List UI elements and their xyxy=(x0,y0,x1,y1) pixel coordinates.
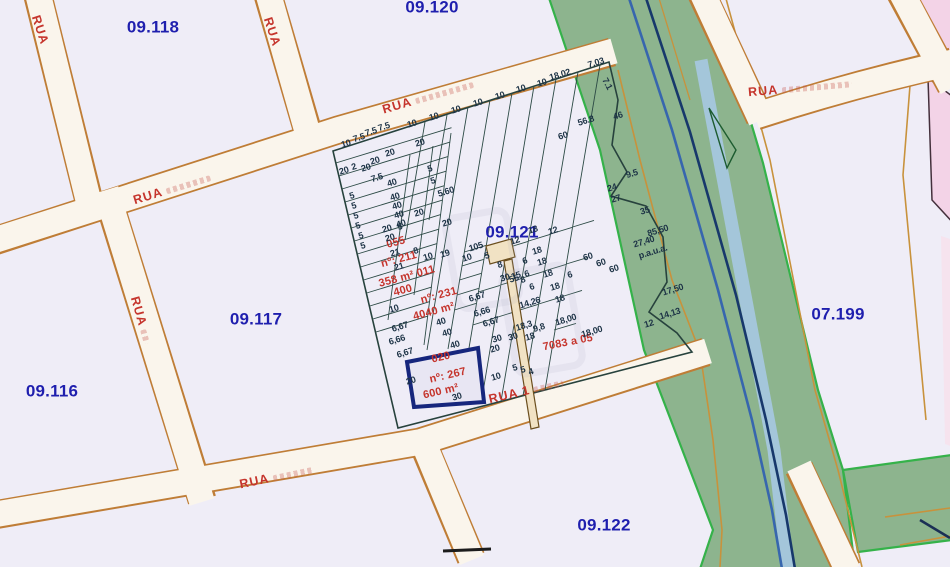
parcel-annotation: 4040 m² xyxy=(412,301,456,323)
street-label: RUA xyxy=(748,77,853,99)
dimension-label: 55 xyxy=(508,273,520,284)
dimension-label: 6 xyxy=(566,270,573,280)
dimension-label: 18,00 xyxy=(580,325,603,340)
dimension-label: 6 xyxy=(528,282,535,292)
dimension-label: 20 xyxy=(489,343,501,354)
street-name-scribble xyxy=(166,175,212,194)
dimension-label: 18 xyxy=(554,293,566,304)
dimension-label: 18 xyxy=(542,268,554,279)
dimension-label: 20 xyxy=(405,375,417,386)
dimension-label: 14,26 xyxy=(518,296,541,311)
dimension-label: 6,67 xyxy=(391,320,410,333)
block-label-09.116: 09.116 xyxy=(26,383,78,400)
dimension-label: 10 xyxy=(494,90,506,101)
block-label-09.120: 09.120 xyxy=(405,0,458,16)
dimension-label: 18 xyxy=(531,245,543,256)
street-label: RUA xyxy=(128,295,153,345)
dimension-label: 8 xyxy=(496,260,503,270)
dimension-label: 18,3 xyxy=(515,319,534,332)
dimension-label: 40 xyxy=(389,191,401,202)
dimension-label: 105 xyxy=(468,241,484,254)
cadastral-map[interactable]: 09.11809.12009.11709.11609.12109.12207.1… xyxy=(0,0,950,567)
dimension-label: 18.02 xyxy=(548,68,571,83)
dimension-label: 10 xyxy=(515,83,527,94)
dimension-label: 10 xyxy=(450,104,462,115)
dimension-label: 5 xyxy=(426,164,433,174)
dimension-label: 20 xyxy=(413,207,425,218)
dimension-label: 6 xyxy=(523,269,530,279)
dimension-label: 5 xyxy=(352,211,359,221)
dimension-label: 8 xyxy=(412,246,419,256)
dimension-label: 10 xyxy=(340,138,352,149)
dimension-label: 6,67 xyxy=(396,346,415,359)
dimension-label: 18 xyxy=(536,256,548,267)
dimension-label: 20 xyxy=(384,232,396,243)
dimension-label: 10 xyxy=(388,303,400,314)
dimension-label: 5 xyxy=(348,191,355,201)
dimension-label: 10 xyxy=(472,97,484,108)
street-name-scribble xyxy=(273,467,313,481)
dimension-label: 20 xyxy=(384,147,396,158)
dimension-label: 6 xyxy=(521,256,528,266)
parcel-annotation: 055 xyxy=(385,235,406,251)
parcel-annotation: nº: 267 xyxy=(429,366,468,385)
dimension-label: 18 xyxy=(527,224,539,235)
dimension-label: 20 xyxy=(381,223,393,234)
dimension-label: 12 xyxy=(643,318,655,329)
block-label-09.121: 09.121 xyxy=(485,224,538,241)
dimension-label: 60 xyxy=(557,130,569,141)
dimension-label: 6,66 xyxy=(388,333,407,346)
street-name-scribble xyxy=(140,329,150,344)
dimension-label: 30 xyxy=(451,391,463,402)
dimension-label: 10 xyxy=(428,111,440,122)
street-label: RUA xyxy=(261,16,282,48)
street-name-scribble xyxy=(533,380,564,393)
dimension-label: 5 xyxy=(350,201,357,211)
dimension-label: 5 xyxy=(359,241,366,251)
dimension-label: 9,8 xyxy=(532,322,546,334)
dimension-label: 40 xyxy=(395,218,407,229)
dimension-label: 40 xyxy=(386,177,398,188)
map-labels: 09.11809.12009.11709.11609.12109.12207.1… xyxy=(0,0,950,567)
dimension-label: 18 xyxy=(549,281,561,292)
dimension-label: 46 xyxy=(612,110,624,121)
dimension-label: 18 xyxy=(524,331,536,342)
dimension-label: 40 xyxy=(435,316,447,327)
dimension-label: 2 xyxy=(350,162,357,172)
dimension-label: 35 xyxy=(639,205,651,216)
dimension-label: 4 xyxy=(527,367,534,377)
dimension-label: 10 xyxy=(406,118,418,129)
dimension-label: 20 xyxy=(414,137,426,148)
parcel-annotation: 358 m² 011 xyxy=(378,264,437,290)
dimension-label: 15 xyxy=(510,270,522,281)
dimension-label: 5 xyxy=(429,176,436,186)
dimension-label: 10 xyxy=(422,251,434,262)
street-label: RUA xyxy=(29,14,50,46)
dimension-label: 7.5 xyxy=(377,121,391,133)
dimension-label: 7.5 xyxy=(352,132,366,144)
dimension-label: 85,50 xyxy=(646,224,669,239)
street-name-scribble xyxy=(415,82,474,104)
dimension-label: 9.5 xyxy=(625,168,639,180)
street-label: RUA 1 xyxy=(488,376,565,405)
parcel-annotation: 7083 a 05 xyxy=(542,333,594,353)
dimension-label: 30 xyxy=(491,333,503,344)
dimension-label: 14,13 xyxy=(658,307,681,322)
dimension-label: 7.1 xyxy=(600,77,614,92)
dimension-label: 20 xyxy=(369,155,381,166)
dimension-label: p.a.u.a. xyxy=(638,243,669,260)
dimension-label: 5 xyxy=(354,221,361,231)
dimension-label: 5 xyxy=(511,363,518,373)
dimension-label: 56.8 xyxy=(577,114,596,127)
parcel-annotation: 020 xyxy=(431,351,452,366)
dimension-label: 12 xyxy=(547,225,559,236)
dimension-label: 8 xyxy=(519,275,526,285)
dimension-label: 5 xyxy=(357,231,364,241)
street-label: RUA xyxy=(132,171,212,206)
dimension-label: 10 xyxy=(461,252,473,263)
dimension-label: 30 xyxy=(499,272,511,283)
dimension-label: 5 xyxy=(519,365,526,375)
dimension-label: 5 xyxy=(483,251,490,261)
street-label: RUA xyxy=(381,78,475,116)
dimension-label: 17,50 xyxy=(661,283,684,298)
block-label-09.122: 09.122 xyxy=(577,517,630,534)
street-label: RUA xyxy=(238,463,313,491)
dimension-label: 7.5 xyxy=(370,172,384,184)
dimension-label: 40 xyxy=(449,339,461,350)
dimension-label: 60 xyxy=(582,251,594,262)
dimension-label: 18,00 xyxy=(554,313,577,328)
dimension-label: 20 xyxy=(441,217,453,228)
dimension-label: 40 xyxy=(441,327,453,338)
dimension-label: 7.03 xyxy=(587,56,606,69)
dimension-label: 21 xyxy=(393,261,405,272)
dimension-label: 24 xyxy=(606,182,618,193)
dimension-label: 40 xyxy=(393,209,405,220)
dimension-label: 10 xyxy=(536,77,548,88)
dimension-label: 40 xyxy=(391,200,403,211)
dimension-label: 5 xyxy=(396,222,403,232)
block-label-09.117: 09.117 xyxy=(230,311,282,328)
dimension-label: 21 xyxy=(389,247,401,258)
block-label-09.118: 09.118 xyxy=(127,19,179,36)
dimension-label: 6,66 xyxy=(473,305,492,318)
dimension-label: 6,67 xyxy=(468,290,487,303)
street-name-scribble xyxy=(782,81,852,93)
dimension-label: 19 xyxy=(439,248,451,259)
dimension-label: 6,67 xyxy=(482,315,501,328)
dimension-label: 60 xyxy=(608,263,620,274)
parcel-annotation: 600 m² xyxy=(422,383,460,402)
dimension-label: 30 xyxy=(507,331,519,342)
dimension-label: 5.60 xyxy=(437,185,456,198)
dimension-label: 12 xyxy=(509,235,521,246)
dimension-label: 7.5 xyxy=(364,126,378,138)
block-label-07.199: 07.199 xyxy=(811,306,864,323)
dimension-label: 20 xyxy=(360,162,372,173)
parcel-annotation: nº: 211 xyxy=(380,250,418,270)
parcel-annotation: 400 xyxy=(392,283,413,299)
parcel-annotation: nº: 231 xyxy=(420,286,459,306)
dimension-label: 10 xyxy=(490,371,502,382)
dimension-label: 20 xyxy=(338,165,350,176)
dimension-label: 27 xyxy=(610,193,622,204)
dimension-label: 60 xyxy=(595,257,607,268)
dimension-label: 27,40 xyxy=(632,235,655,250)
